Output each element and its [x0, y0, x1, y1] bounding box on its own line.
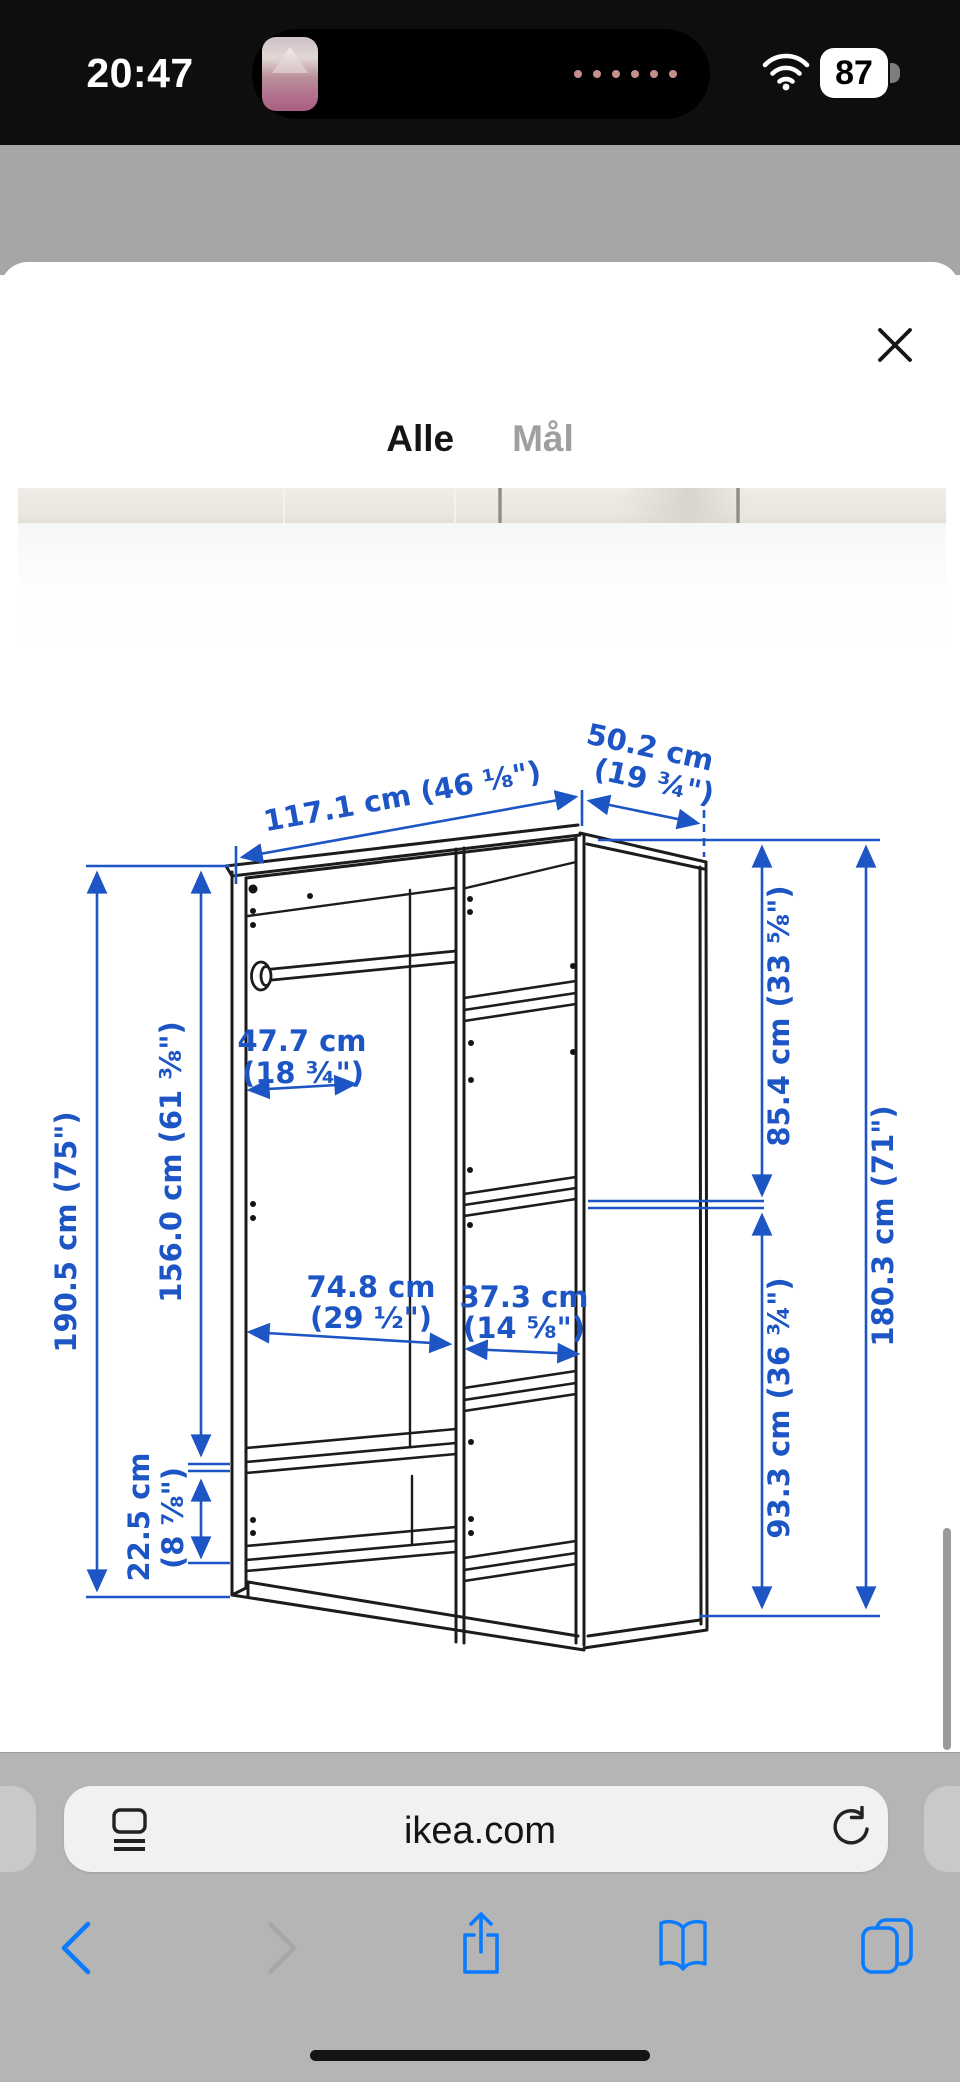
dim-label-right-top: 85.4 cm (33 ⅝"): [762, 885, 796, 1146]
home-indicator[interactable]: [310, 2050, 650, 2061]
dim-label-rail-2: (18 ¾"): [242, 1056, 364, 1090]
product-photo-strip[interactable]: [18, 488, 946, 523]
activity-dot-icon: [631, 70, 639, 78]
iphone-screenshot: { "status_bar": { "time": "20:47", "batt…: [0, 0, 960, 2081]
photo-gap-line: [736, 488, 740, 523]
back-button[interactable]: [52, 1918, 102, 1978]
page-scrollbar[interactable]: [943, 1528, 951, 1750]
dim-label-plinth-2: (8 ⅞"): [156, 1467, 190, 1569]
bookmarks-icon[interactable]: [652, 1914, 714, 1976]
url-text[interactable]: ikea.com: [0, 1810, 960, 1853]
activity-dot-icon: [593, 70, 601, 78]
shelves-left-compartment: [246, 1429, 456, 1571]
reload-icon[interactable]: [828, 1806, 874, 1852]
wardrobe-dimension-diagram: 117.1 cm (46 ⅛") 50.2 cm (19 ¾") 190.5 c…: [0, 640, 960, 1760]
tabs-icon[interactable]: [856, 1914, 918, 1976]
dim-label-height-total: 190.5 cm (75"): [49, 1111, 83, 1352]
media-tabs: Alle Mål: [0, 418, 960, 460]
activity-dot-icon: [669, 70, 677, 78]
photo-seam: [283, 488, 285, 523]
dim-label-plinth-1: 22.5 cm: [122, 1452, 156, 1581]
dim-label-mid-width-1: 37.3 cm: [459, 1280, 588, 1314]
photo-seam: [454, 488, 456, 523]
activity-dot-icon: [574, 70, 582, 78]
dim-label-mid-width-2: (14 ⅝"): [463, 1311, 585, 1345]
tab-alle[interactable]: Alle: [386, 418, 454, 460]
dim-label-width-front: 117.1 cm (46 ⅛"): [261, 754, 544, 838]
shelf-pin-holes: [249, 885, 577, 1537]
battery-indicator: 87: [820, 48, 888, 98]
dim-label-right-bottom: 93.3 cm (36 ¾"): [762, 1277, 796, 1538]
dim-label-left-width-2: (29 ½"): [310, 1301, 432, 1335]
activity-dot-icon: [612, 70, 620, 78]
wifi-icon: [762, 52, 810, 92]
dim-label-height-inner: 156.0 cm (61 ⅜"): [154, 1021, 188, 1302]
status-time: 20:47: [70, 50, 210, 97]
battery-tip: [890, 63, 900, 83]
dimmed-page-overlay: Skal vi hjælpe med at tegne din nye: [0, 145, 960, 275]
tab-maal[interactable]: Mål: [512, 418, 574, 460]
share-icon[interactable]: [450, 1908, 512, 1978]
clothes-rail: [252, 951, 457, 990]
status-bar: 20:47 87: [0, 0, 960, 145]
dim-label-left-width-1: 74.8 cm: [306, 1270, 435, 1304]
live-activity-thumbnail: [262, 37, 318, 111]
dim-label-rail-1: 47.7 cm: [237, 1024, 366, 1058]
dynamic-island: [252, 29, 710, 119]
close-icon[interactable]: [876, 326, 914, 364]
dim-label-right-total: 180.3 cm (71"): [866, 1105, 900, 1346]
forward-button[interactable]: [256, 1918, 306, 1978]
photo-fade: [18, 523, 946, 653]
photo-gap-line: [498, 488, 502, 523]
cabinet-outline: [226, 825, 707, 1650]
activity-dot-icon: [650, 70, 658, 78]
photo-shading: [618, 488, 748, 523]
